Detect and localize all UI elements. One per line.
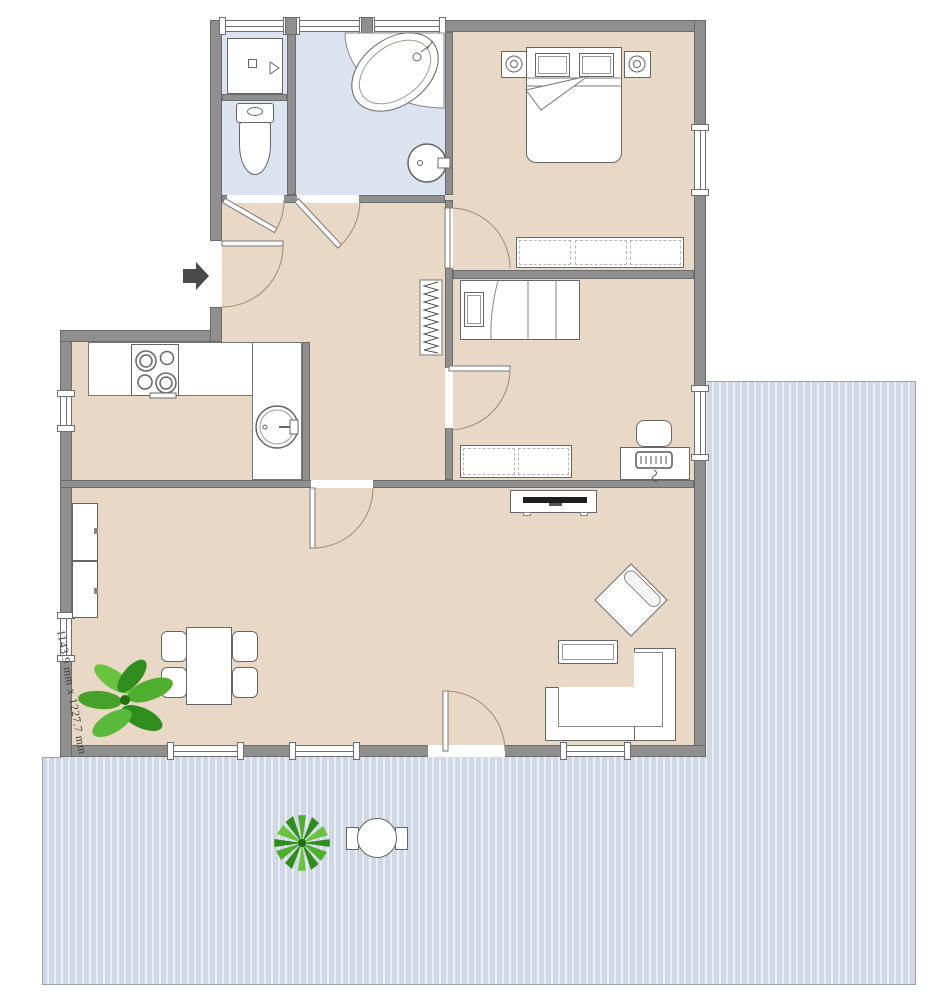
wall — [445, 32, 453, 195]
shower-drain — [248, 59, 257, 68]
nightstand[interactable] — [624, 51, 651, 78]
wardrobe-section — [630, 240, 681, 265]
pillow — [579, 53, 614, 77]
deck-edge — [703, 381, 916, 382]
wall — [287, 32, 296, 195]
deck-edge — [42, 757, 62, 758]
wall — [210, 307, 222, 342]
dining-chair[interactable] — [232, 667, 258, 698]
door-opening — [311, 480, 373, 488]
window[interactable] — [296, 20, 363, 32]
nightstand[interactable] — [501, 51, 528, 78]
dresser-section — [518, 448, 569, 475]
entrance-opening — [210, 241, 222, 307]
door-opening — [445, 368, 453, 428]
window[interactable] — [694, 127, 706, 193]
cabinet-handle — [94, 528, 98, 534]
window[interactable] — [694, 388, 706, 458]
deck-edge — [42, 984, 916, 985]
door-opening — [227, 195, 284, 203]
stove[interactable] — [131, 344, 179, 396]
pillow — [535, 53, 570, 77]
dining-chair[interactable] — [232, 631, 258, 662]
deck-edge — [915, 381, 916, 985]
floor-plan-canvas: 1143.9 mm x 1227.7 mm — [0, 0, 931, 1000]
desk-chair[interactable] — [636, 420, 672, 447]
wall — [60, 330, 222, 342]
dining-chair[interactable] — [161, 631, 187, 662]
tv-base — [549, 503, 562, 506]
window[interactable] — [292, 745, 357, 757]
wardrobe-section — [575, 240, 627, 265]
cabinet-handle — [94, 588, 98, 594]
tv-stand-foot — [523, 512, 531, 516]
sofa-seat — [634, 652, 663, 727]
door-opening — [428, 745, 505, 757]
window[interactable] — [371, 20, 443, 32]
pillow — [464, 292, 484, 327]
wall — [210, 20, 222, 241]
kitchen-counter-side[interactable] — [252, 342, 302, 480]
toilet-button — [247, 107, 263, 116]
wardrobe-section — [519, 240, 571, 265]
window[interactable] — [170, 745, 241, 757]
outdoor-table[interactable] — [357, 818, 397, 858]
wall — [60, 480, 694, 488]
floor-bathroom-main — [296, 32, 445, 195]
dining-table[interactable] — [186, 627, 232, 705]
coffee-table-top — [562, 644, 614, 660]
entrance-arrow[interactable] — [183, 262, 209, 290]
dining-chair[interactable] — [161, 667, 187, 698]
window[interactable] — [222, 20, 287, 32]
dresser-section — [463, 448, 515, 475]
deck-edge — [42, 757, 43, 985]
shower-partition-wall — [222, 94, 287, 101]
desk[interactable] — [620, 447, 690, 480]
wall — [302, 342, 310, 488]
wall — [453, 270, 694, 279]
door-opening — [297, 195, 359, 203]
window[interactable] — [60, 393, 72, 429]
window-mullion — [285, 17, 297, 35]
window-mullion — [361, 17, 373, 35]
window[interactable] — [563, 745, 628, 757]
door-opening — [445, 208, 453, 268]
tv-stand-foot — [580, 512, 588, 516]
